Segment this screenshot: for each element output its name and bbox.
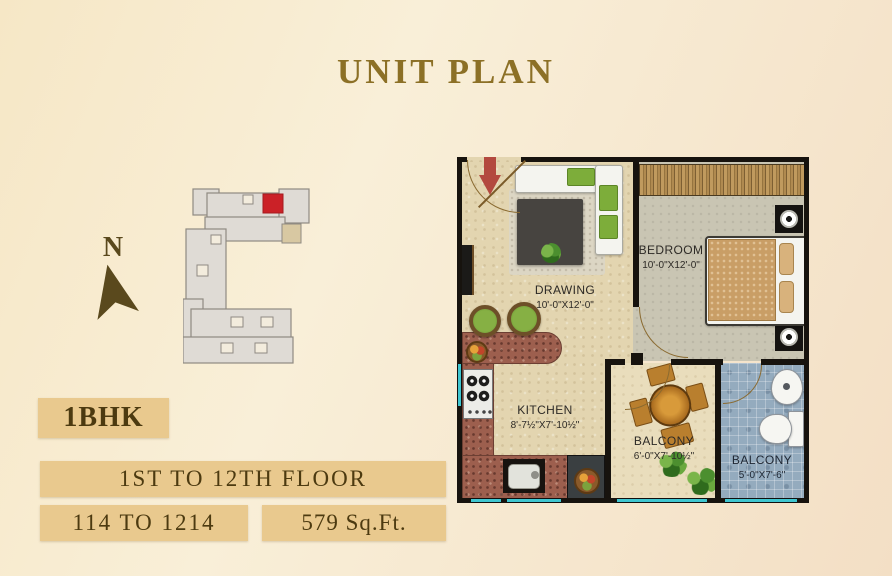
- toilet-bowl: [759, 414, 792, 444]
- room-name: KITCHEN: [485, 403, 605, 419]
- area-label: 579 Sq.Ft.: [301, 510, 406, 536]
- rug-plant: [541, 243, 561, 263]
- unit-plan-page: UNIT PLAN N 1BHK: [0, 0, 892, 576]
- room-dimensions: 8'-7½"X7'-10½": [485, 419, 605, 432]
- kitchen-window-bottom-1: [471, 498, 501, 503]
- room-dimensions: 5'-0"X7'-6": [720, 469, 804, 482]
- fruit-plate: [574, 468, 600, 494]
- sofa-cushion-2: [599, 185, 618, 211]
- lamp-icon: [780, 328, 798, 346]
- key-plan-highlight-unit: [263, 194, 283, 213]
- wall-junction-stub: [631, 353, 643, 365]
- kitchen-window-bottom-2: [507, 498, 561, 503]
- key-plan: [183, 177, 311, 365]
- room-name: DRAWING: [495, 283, 635, 299]
- kitchen-sink: [503, 459, 545, 493]
- pillow-1: [779, 243, 794, 275]
- sink-tap: [531, 471, 539, 479]
- floor-range-box: 1ST TO 12TH FLOOR: [40, 461, 446, 497]
- kitchen-window-left: [457, 364, 462, 406]
- wall-right: [804, 157, 809, 503]
- unit-type-box: 1BHK: [38, 398, 169, 438]
- room-label-drawing: DRAWING 10'-0"X12'-0": [495, 283, 635, 312]
- room-name: BEDROOM: [609, 243, 733, 259]
- wall-horizontal-3: [761, 359, 809, 365]
- room-label-kitchen: KITCHEN 8'-7½"X7'-10½": [485, 403, 605, 432]
- room-dimensions: 6'-0"X7'-10½": [609, 450, 719, 463]
- north-indicator: N: [84, 234, 142, 318]
- fruit-bowl: [466, 341, 488, 363]
- unit-range-box: 114 TO 1214: [40, 505, 248, 541]
- key-plan-lift: [282, 224, 301, 243]
- unit-range-label: 114 TO 1214: [73, 510, 216, 536]
- room-name: BALCONY: [609, 434, 719, 450]
- unit-type-label: 1BHK: [63, 402, 143, 434]
- lamp-icon: [780, 210, 798, 228]
- wall-left: [457, 157, 462, 503]
- room-name: BALCONY: [720, 453, 804, 469]
- nightstand-2: [775, 323, 803, 351]
- pillow-2: [779, 281, 794, 313]
- north-arrow-icon: [82, 259, 144, 323]
- balcony-plant-2: [683, 467, 719, 495]
- wash-basin: [771, 369, 803, 405]
- entry-arrow-icon: [479, 157, 501, 197]
- wardrobe: [639, 164, 806, 196]
- room-dimensions: 10'-0"X12'-0": [609, 259, 733, 272]
- room-label-balcony: BALCONY 6'-0"X7'-10½": [609, 434, 719, 463]
- sofa-cushion-1: [567, 168, 595, 186]
- basin-drain: [783, 383, 790, 390]
- room-dimensions: 10'-0"X12'-0": [495, 299, 635, 312]
- page-title: UNIT PLAN: [0, 52, 892, 92]
- tv-unit: [462, 245, 474, 295]
- nightstand-1: [775, 205, 803, 233]
- floor-plan: DRAWING 10'-0"X12'-0" BEDROOM 10'-0"X12'…: [457, 157, 809, 503]
- area-box: 579 Sq.Ft.: [262, 505, 446, 541]
- room-label-bedroom: BEDROOM 10'-0"X12'-0": [609, 243, 733, 272]
- room-label-balcony-2: BALCONY 5'-0"X7'-6": [720, 453, 804, 482]
- sofa-cushion-3: [599, 215, 618, 239]
- floor-range-label: 1ST TO 12TH FLOOR: [119, 466, 367, 492]
- kitchen-appliance: [567, 455, 605, 499]
- bathroom-window-bottom: [725, 498, 797, 503]
- wall-kitchen-balcony: [605, 359, 611, 503]
- balcony-window-bottom: [617, 498, 707, 503]
- north-label: N: [84, 234, 142, 262]
